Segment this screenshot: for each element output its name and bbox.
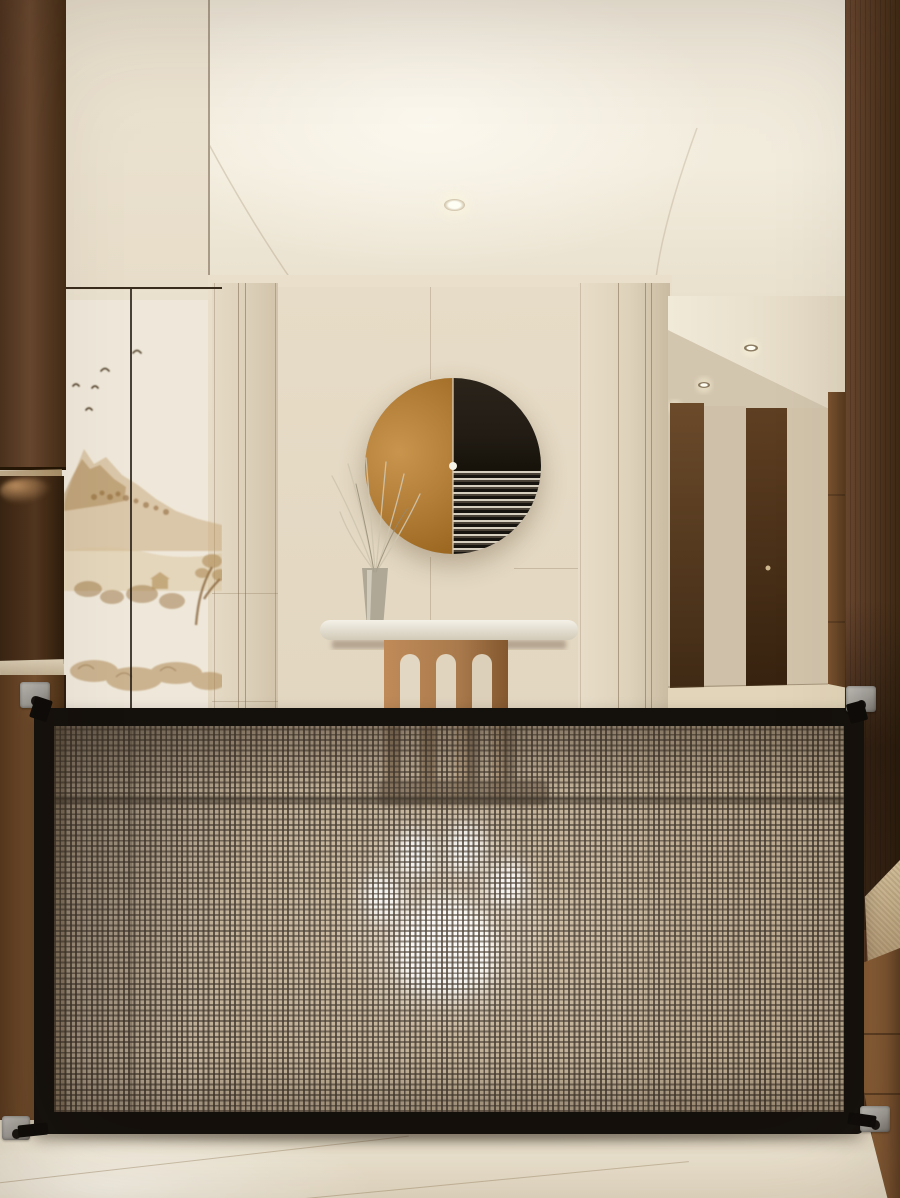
corridor-door	[746, 408, 787, 688]
upper-left-wall	[64, 0, 210, 290]
art-dark-quadrant	[453, 378, 541, 471]
vase-with-branches	[312, 450, 452, 634]
console-top	[320, 620, 578, 640]
under-cabinet-light-glow	[0, 478, 52, 504]
door-handle-icon	[766, 566, 771, 571]
mural-foreground-bushes	[70, 660, 222, 691]
upper-cabinet	[0, 0, 66, 470]
art-striped-quadrant	[453, 471, 541, 554]
downlight-icon	[444, 199, 465, 211]
open-shelf	[0, 476, 64, 664]
scene-photo	[0, 0, 900, 1198]
side-hallway	[668, 296, 848, 716]
pet-gate	[34, 708, 864, 1134]
corridor-door	[670, 403, 704, 688]
mesh-shading	[54, 726, 844, 1112]
gate-mesh	[54, 726, 844, 1112]
